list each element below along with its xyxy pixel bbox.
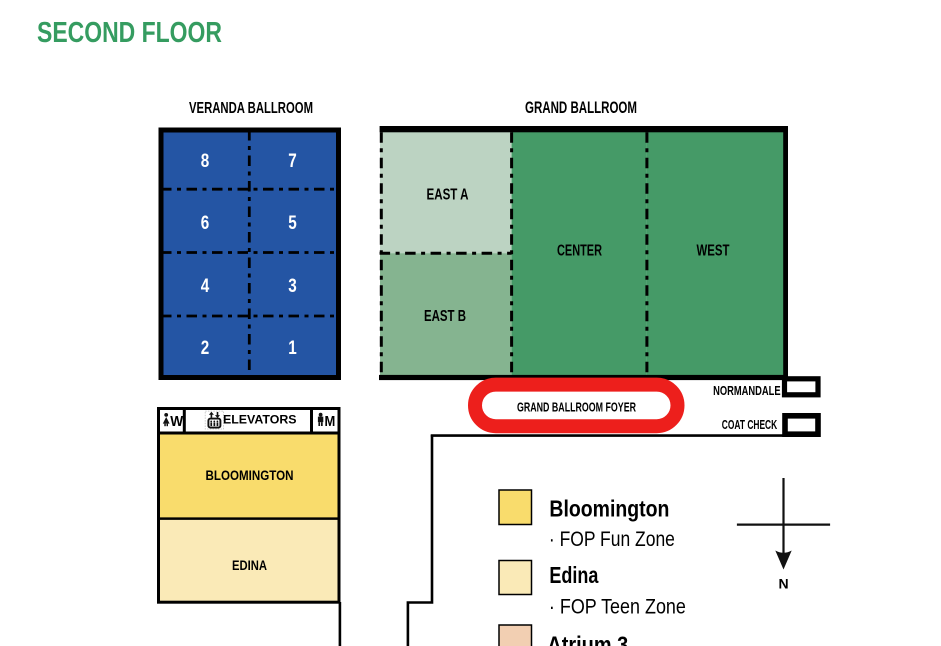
svg-text:VERANDA BALLROOM: VERANDA BALLROOM [189,100,313,117]
svg-text:CENTER: CENTER [557,243,602,260]
svg-text:1: 1 [288,337,297,359]
svg-text:WEST: WEST [697,243,730,260]
svg-text:4: 4 [201,275,210,297]
svg-text:3: 3 [288,275,297,297]
svg-text:5: 5 [288,212,297,234]
svg-text:6: 6 [201,212,210,234]
svg-text:M: M [325,414,336,430]
svg-text:GRAND BALLROOM FOYER: GRAND BALLROOM FOYER [517,401,636,415]
svg-text:Edina: Edina [549,562,599,588]
svg-text:7: 7 [288,150,297,172]
svg-text:2: 2 [201,337,210,359]
svg-text:· FOP Teen Zone: · FOP Teen Zone [549,596,686,619]
svg-text:NORMANDALE: NORMANDALE [713,383,781,398]
svg-text:Atrium 3: Atrium 3 [547,632,628,646]
svg-text:GRAND BALLROOM: GRAND BALLROOM [525,99,637,117]
svg-text:· FOP Fun Zone: · FOP Fun Zone [549,528,675,551]
svg-text:SECOND FLOOR: SECOND FLOOR [37,17,222,49]
svg-text:ELEVATORS: ELEVATORS [223,412,297,426]
svg-text:EDINA: EDINA [232,558,267,573]
svg-text:N: N [778,576,788,592]
svg-text:BLOOMINGTON: BLOOMINGTON [206,468,294,483]
svg-text:COAT CHECK: COAT CHECK [722,418,777,432]
svg-text:EAST B: EAST B [424,308,466,325]
svg-text:W: W [170,414,183,430]
svg-text:8: 8 [201,150,210,172]
svg-text:EAST A: EAST A [427,186,469,203]
svg-text:Bloomington: Bloomington [549,495,669,521]
